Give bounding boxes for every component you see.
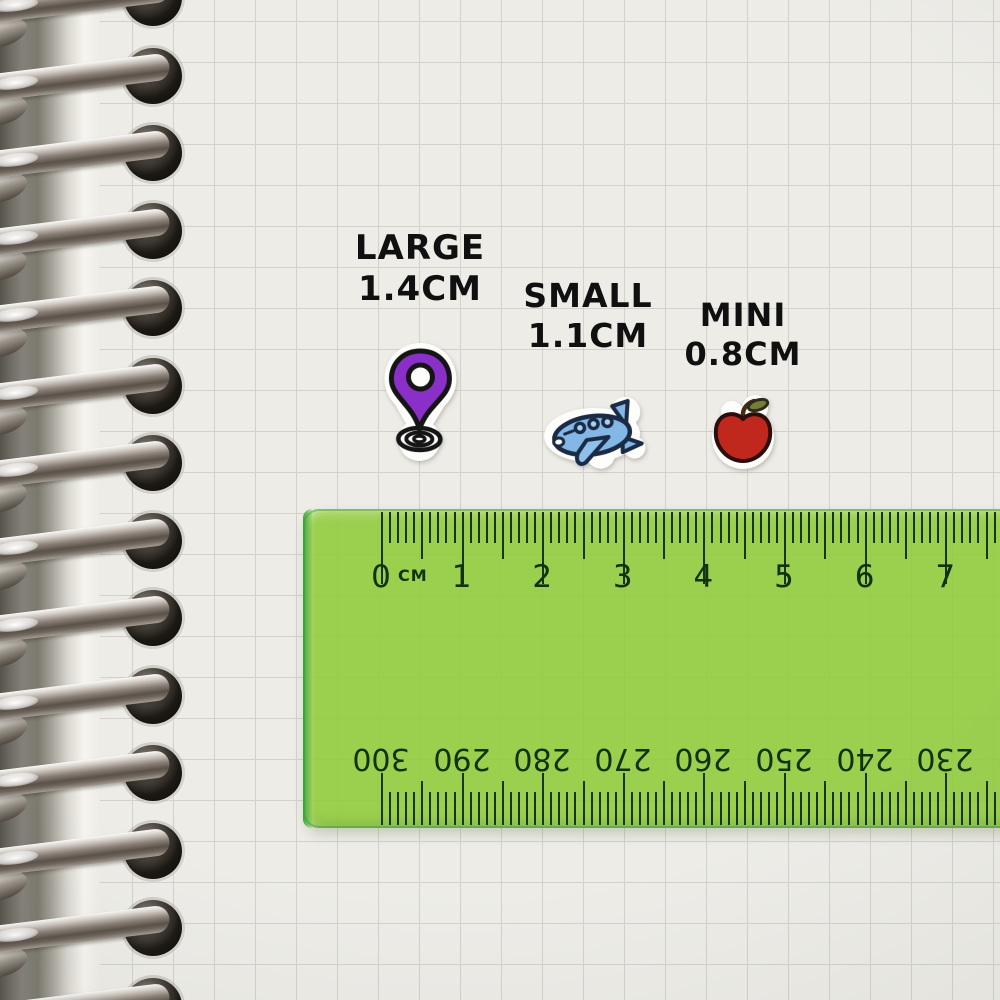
ruler-tick-top (639, 512, 641, 543)
ruler-tick-bottom (639, 792, 641, 825)
label-small-size: 1.1CM (506, 316, 670, 356)
ruler-tick-top (445, 512, 447, 543)
ruler-tick-bottom (905, 781, 907, 825)
ruler-tick-bottom (381, 773, 383, 825)
ruler-tick-top (389, 512, 391, 543)
ruler-tick-bottom (720, 792, 722, 825)
ruler-tick-bottom (953, 792, 955, 825)
ruler-tick-bottom (760, 792, 762, 825)
ruler-tick-bottom (397, 792, 399, 825)
ruler-mm-number: 300 (352, 741, 409, 776)
ruler-unit-label: CM (398, 566, 428, 585)
ruler-tick-bottom (445, 792, 447, 825)
ruler-tick-top (808, 512, 810, 543)
ruler-tick-bottom (454, 792, 456, 825)
ruler-tick-bottom (631, 792, 633, 825)
ruler-tick-bottom (840, 792, 842, 825)
ruler-tick-bottom (945, 773, 947, 825)
ruler-tick-bottom (486, 792, 488, 825)
ruler-tick-top (897, 512, 899, 543)
ruler-cm-number: 3 (613, 559, 633, 595)
label-mini-size: 0.8CM (662, 335, 824, 374)
ruler-tick-bottom (534, 792, 536, 825)
ruler-tick-bottom (824, 781, 826, 825)
ruler-tick-top (470, 512, 472, 543)
ruler-tick-top (607, 512, 609, 543)
ruler-tick-top (736, 512, 738, 543)
ruler-tick-bottom (703, 773, 705, 825)
ruler-tick-top (647, 512, 649, 543)
ruler-tick-top (599, 512, 601, 543)
ruler-tick-top (873, 512, 875, 543)
ruler-tick-top (720, 512, 722, 543)
ruler-tick-bottom (429, 792, 431, 825)
ruler-tick-bottom (986, 781, 988, 825)
ruler-tick-bottom (615, 792, 617, 825)
ruler-tick-top (921, 512, 923, 543)
ruler-tick-bottom (599, 792, 601, 825)
ruler-tick-top (583, 512, 585, 559)
ruler-tick-top (824, 512, 826, 559)
ruler-tick-top (486, 512, 488, 543)
ruler-tick-top (728, 512, 730, 543)
pin-icon (390, 351, 450, 451)
apple-sticker (702, 394, 786, 470)
ruler-tick-bottom (937, 792, 939, 825)
ruler-tick-top (961, 512, 963, 543)
ruler-tick-bottom (977, 792, 979, 825)
ruler-tick-bottom (470, 792, 472, 825)
ruler-tick-bottom (752, 792, 754, 825)
ruler-tick-top (437, 512, 439, 543)
ruler-tick-top (534, 512, 536, 543)
ruler-tick-top (969, 512, 971, 543)
ruler-tick-bottom (921, 792, 923, 825)
ruler-tick-bottom (591, 792, 593, 825)
ruler-tick-top (977, 512, 979, 543)
ruler-tick-bottom (462, 773, 464, 825)
ruler-tick-bottom (437, 792, 439, 825)
ruler-tick-bottom (881, 792, 883, 825)
ruler-tick-bottom (711, 792, 713, 825)
label-large-name: LARGE (338, 228, 502, 269)
ruler-mm-number: 270 (594, 741, 651, 776)
ruler: 01234567 CM 300290280270260250240230 (303, 509, 1000, 828)
ruler-tick-top (905, 512, 907, 559)
ruler-tick-top (397, 512, 399, 543)
ruler-mm-number: 240 (836, 741, 893, 776)
ruler-tick-bottom (929, 792, 931, 825)
ruler-tick-bottom (510, 792, 512, 825)
ruler-mm-number: 230 (917, 741, 974, 776)
ruler-tick-top (857, 512, 859, 543)
ruler-tick-bottom (792, 792, 794, 825)
label-mini-name: MINI (662, 296, 824, 335)
ruler-tick-bottom (736, 792, 738, 825)
ruler-tick-bottom (663, 781, 665, 825)
ruler-tick-top (776, 512, 778, 543)
ruler-tick-top (711, 512, 713, 543)
ruler-tick-bottom (744, 781, 746, 825)
ruler-tick-bottom (550, 792, 552, 825)
ruler-tick-bottom (647, 792, 649, 825)
ruler-tick-bottom (768, 792, 770, 825)
ruler-tick-top (881, 512, 883, 543)
ruler-tick-top (695, 512, 697, 543)
ruler-tick-bottom (994, 792, 996, 825)
ruler-cm-number: 6 (855, 559, 875, 595)
ruler-tick-top (510, 512, 512, 543)
label-large: LARGE 1.4CM (338, 228, 502, 311)
ruler-tick-bottom (913, 792, 915, 825)
ruler-tick-top (800, 512, 802, 543)
ruler-tick-top (615, 512, 617, 543)
ruler-tick-top (558, 512, 560, 543)
ruler-tick-bottom (558, 792, 560, 825)
ruler-tick-top (566, 512, 568, 543)
ruler-tick-top (574, 512, 576, 543)
ruler-tick-bottom (542, 773, 544, 825)
ruler-tick-bottom (808, 792, 810, 825)
label-small-name: SMALL (506, 276, 670, 316)
ruler-tick-top (986, 512, 988, 559)
location-pin-sticker (379, 340, 461, 463)
ruler-tick-top (848, 512, 850, 543)
ruler-tick-bottom (421, 781, 423, 825)
ruler-cm-number: 1 (452, 559, 472, 595)
ruler-tick-bottom (832, 792, 834, 825)
ruler-tick-top (421, 512, 423, 559)
ruler-tick-top (631, 512, 633, 543)
ruler-tick-top (550, 512, 552, 543)
ruler-cm-number: 7 (935, 559, 955, 595)
ruler-tick-top (832, 512, 834, 543)
ruler-tick-top (760, 512, 762, 543)
ruler-tick-bottom (873, 792, 875, 825)
ruler-tick-top (687, 512, 689, 543)
label-mini: MINI 0.8CM (662, 296, 824, 374)
ruler-tick-bottom (478, 792, 480, 825)
ruler-cm-number: 5 (774, 559, 794, 595)
ruler-mm-number: 280 (514, 741, 571, 776)
ruler-tick-top (792, 512, 794, 543)
label-small: SMALL 1.1CM (506, 276, 670, 357)
ruler-tick-bottom (695, 792, 697, 825)
ruler-tick-bottom (889, 792, 891, 825)
ruler-cm-number: 4 (694, 559, 714, 595)
ruler-tick-bottom (655, 792, 657, 825)
ruler-tick-bottom (679, 792, 681, 825)
ruler-tick-bottom (848, 792, 850, 825)
ruler-tick-bottom (623, 773, 625, 825)
ruler-tick-bottom (687, 792, 689, 825)
spiral-binding (0, 0, 210, 1000)
ruler-tick-bottom (969, 792, 971, 825)
ruler-tick-bottom (728, 792, 730, 825)
ruler-tick-bottom (494, 792, 496, 825)
ruler-mm-number: 290 (433, 741, 490, 776)
ruler-tick-top (994, 512, 996, 543)
ruler-tick-top (937, 512, 939, 543)
ruler-tick-bottom (961, 792, 963, 825)
ruler-tick-bottom (897, 792, 899, 825)
label-large-size: 1.4CM (338, 269, 502, 310)
ruler-tick-top (454, 512, 456, 543)
ruler-tick-top (768, 512, 770, 543)
ruler-tick-top (889, 512, 891, 543)
notebook-photo: LARGE 1.4CM SMALL 1.1CM MINI 0.8CM (0, 0, 1000, 1000)
ruler-tick-top (671, 512, 673, 543)
ruler-tick-top (913, 512, 915, 543)
ruler-tick-top (655, 512, 657, 543)
ruler-tick-bottom (526, 792, 528, 825)
ruler-tick-top (494, 512, 496, 543)
ruler-tick-bottom (607, 792, 609, 825)
ruler-cm-number: 0 (371, 559, 391, 595)
ruler-tick-top (953, 512, 955, 543)
ruler-tick-top (518, 512, 520, 543)
ruler-tick-bottom (405, 792, 407, 825)
ruler-tick-bottom (566, 792, 568, 825)
ruler-tick-bottom (671, 792, 673, 825)
ruler-tick-bottom (583, 781, 585, 825)
ruler-tick-bottom (816, 792, 818, 825)
ruler-cm-number: 2 (532, 559, 552, 595)
ruler-tick-top (478, 512, 480, 543)
ruler-tick-top (429, 512, 431, 543)
ruler-tick-bottom (518, 792, 520, 825)
ruler-tick-top (502, 512, 504, 559)
ruler-tick-bottom (800, 792, 802, 825)
ruler-tick-top (744, 512, 746, 559)
ruler-tick-top (413, 512, 415, 543)
ruler-tick-top (591, 512, 593, 543)
ruler-tick-bottom (413, 792, 415, 825)
ruler-tick-bottom (784, 773, 786, 825)
ruler-tick-top (840, 512, 842, 543)
ruler-tick-top (405, 512, 407, 543)
ruler-tick-top (679, 512, 681, 543)
ruler-tick-bottom (776, 792, 778, 825)
ruler-tick-top (526, 512, 528, 543)
ruler-mm-number: 250 (755, 741, 812, 776)
ruler-tick-top (929, 512, 931, 543)
airplane-sticker (539, 395, 649, 471)
ruler-mm-number: 260 (675, 741, 732, 776)
ruler-tick-top (752, 512, 754, 543)
ruler-tick-bottom (389, 792, 391, 825)
ruler-tick-bottom (865, 773, 867, 825)
ruler-tick-bottom (574, 792, 576, 825)
ruler-tick-bottom (857, 792, 859, 825)
ruler-tick-top (816, 512, 818, 543)
ruler-tick-top (663, 512, 665, 559)
ruler-tick-bottom (502, 781, 504, 825)
